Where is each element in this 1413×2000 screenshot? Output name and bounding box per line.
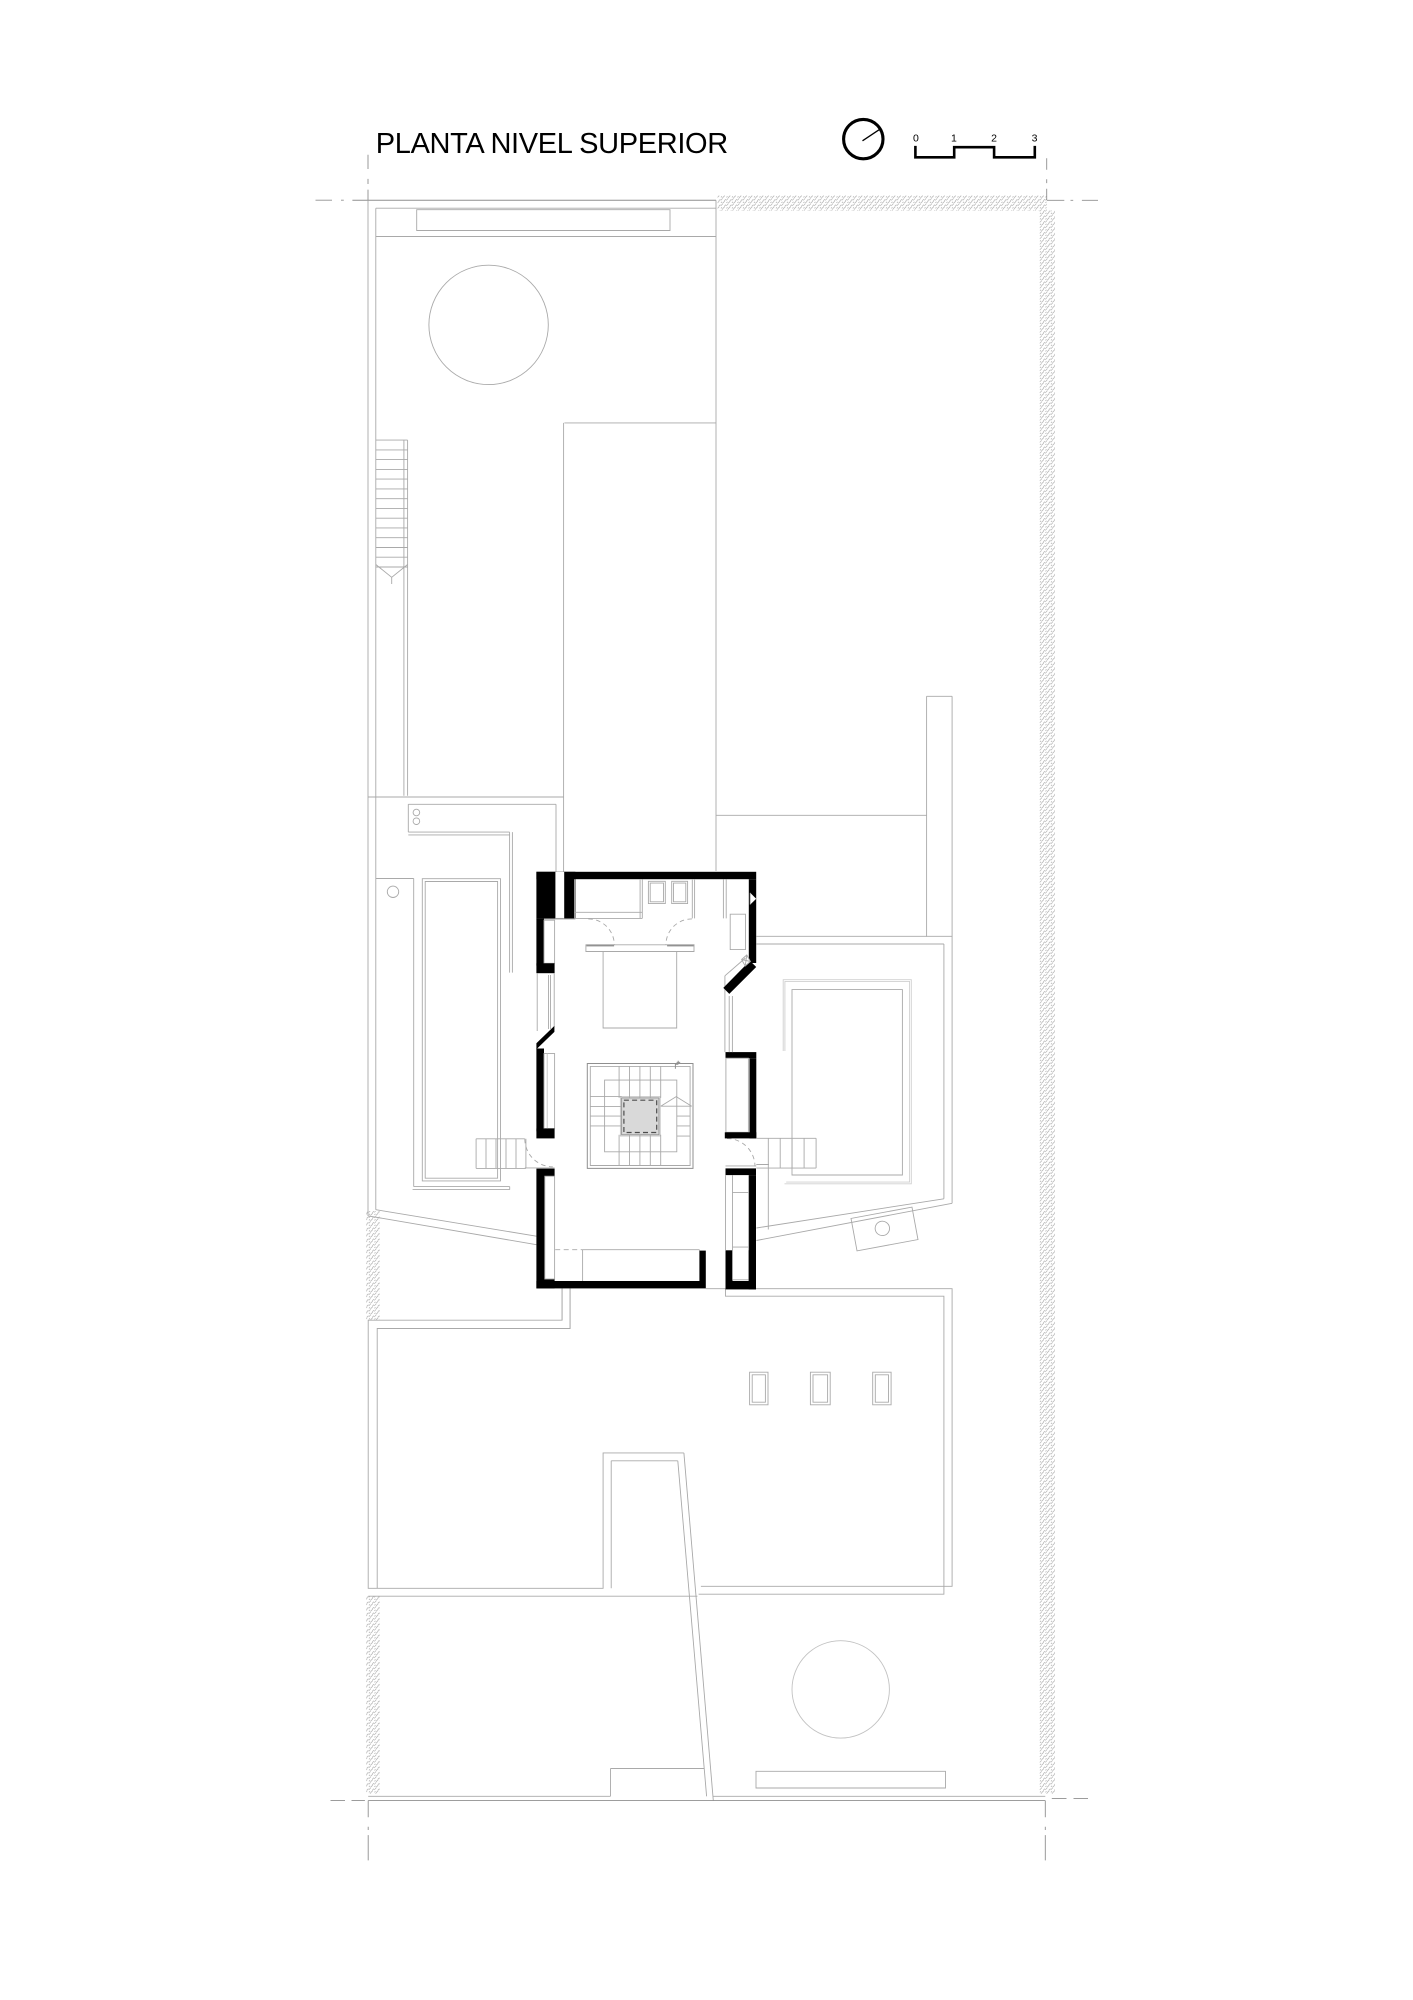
svg-text:2: 2 [991,133,997,145]
svg-text:3: 3 [1032,133,1038,145]
svg-text:1: 1 [951,133,957,145]
svg-text:0: 0 [913,133,919,145]
svg-text:PLANTA NIVEL SUPERIOR: PLANTA NIVEL SUPERIOR [376,128,728,160]
